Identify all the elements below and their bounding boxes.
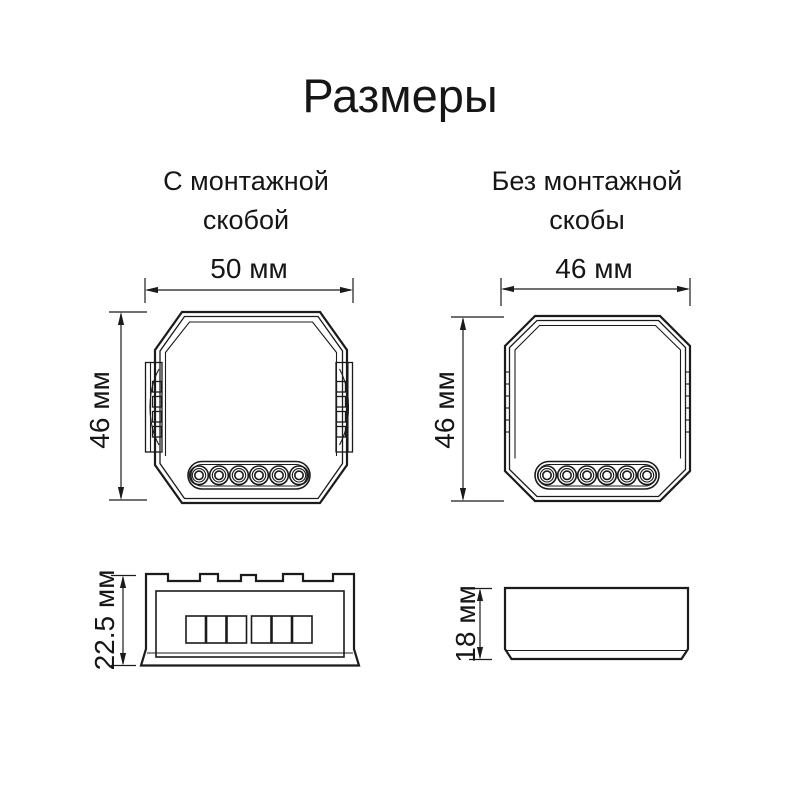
- dim-label-depth-with-bracket: 22.5 мм: [89, 570, 121, 671]
- dim-label-width-with-bracket: 50 мм: [210, 253, 287, 285]
- page-title: Размеры: [0, 70, 800, 122]
- caption-without-bracket-line2: скобы: [427, 201, 747, 240]
- terminal-openings: [186, 616, 312, 643]
- caption-without-bracket: Без монтажной скобы: [427, 162, 747, 240]
- dimensions-diagram-page: Размеры С монтажной скобой Без монтажной…: [0, 0, 800, 800]
- side-view-with-bracket: [111, 574, 359, 666]
- terminal-block: [535, 462, 659, 490]
- terminal-6: [290, 466, 309, 485]
- terminal-1: [538, 466, 557, 485]
- device-profile: [141, 574, 359, 666]
- terminal-6: [638, 466, 657, 485]
- terminal-2: [210, 466, 229, 485]
- mounting-tab-right: [336, 363, 353, 453]
- terminal-3: [578, 466, 597, 485]
- dim-label-width-without-bracket: 46 мм: [555, 253, 632, 285]
- dim-label-depth-without-bracket: 18 мм: [450, 585, 482, 662]
- device-body-outline: [155, 312, 347, 503]
- device-profile: [505, 588, 688, 659]
- top-view-with-bracket: [109, 278, 353, 503]
- dim-label-height-without-bracket: 46 мм: [429, 371, 461, 448]
- side-view-without-bracket: [469, 588, 688, 660]
- terminal-2: [558, 466, 577, 485]
- terminal-block: [188, 462, 310, 490]
- caption-with-bracket: С монтажной скобой: [86, 162, 406, 240]
- caption-with-bracket-line2: скобой: [86, 201, 406, 240]
- terminal-5: [270, 466, 289, 485]
- terminal-3: [230, 466, 249, 485]
- terminal-1: [190, 466, 209, 485]
- terminal-4: [598, 466, 617, 485]
- terminal-5: [618, 466, 637, 485]
- caption-with-bracket-line1: С монтажной: [86, 162, 406, 201]
- dim-label-height-with-bracket: 46 мм: [84, 371, 116, 448]
- caption-without-bracket-line1: Без монтажной: [427, 162, 747, 201]
- terminal-4: [250, 466, 269, 485]
- top-view-without-bracket: [451, 278, 690, 501]
